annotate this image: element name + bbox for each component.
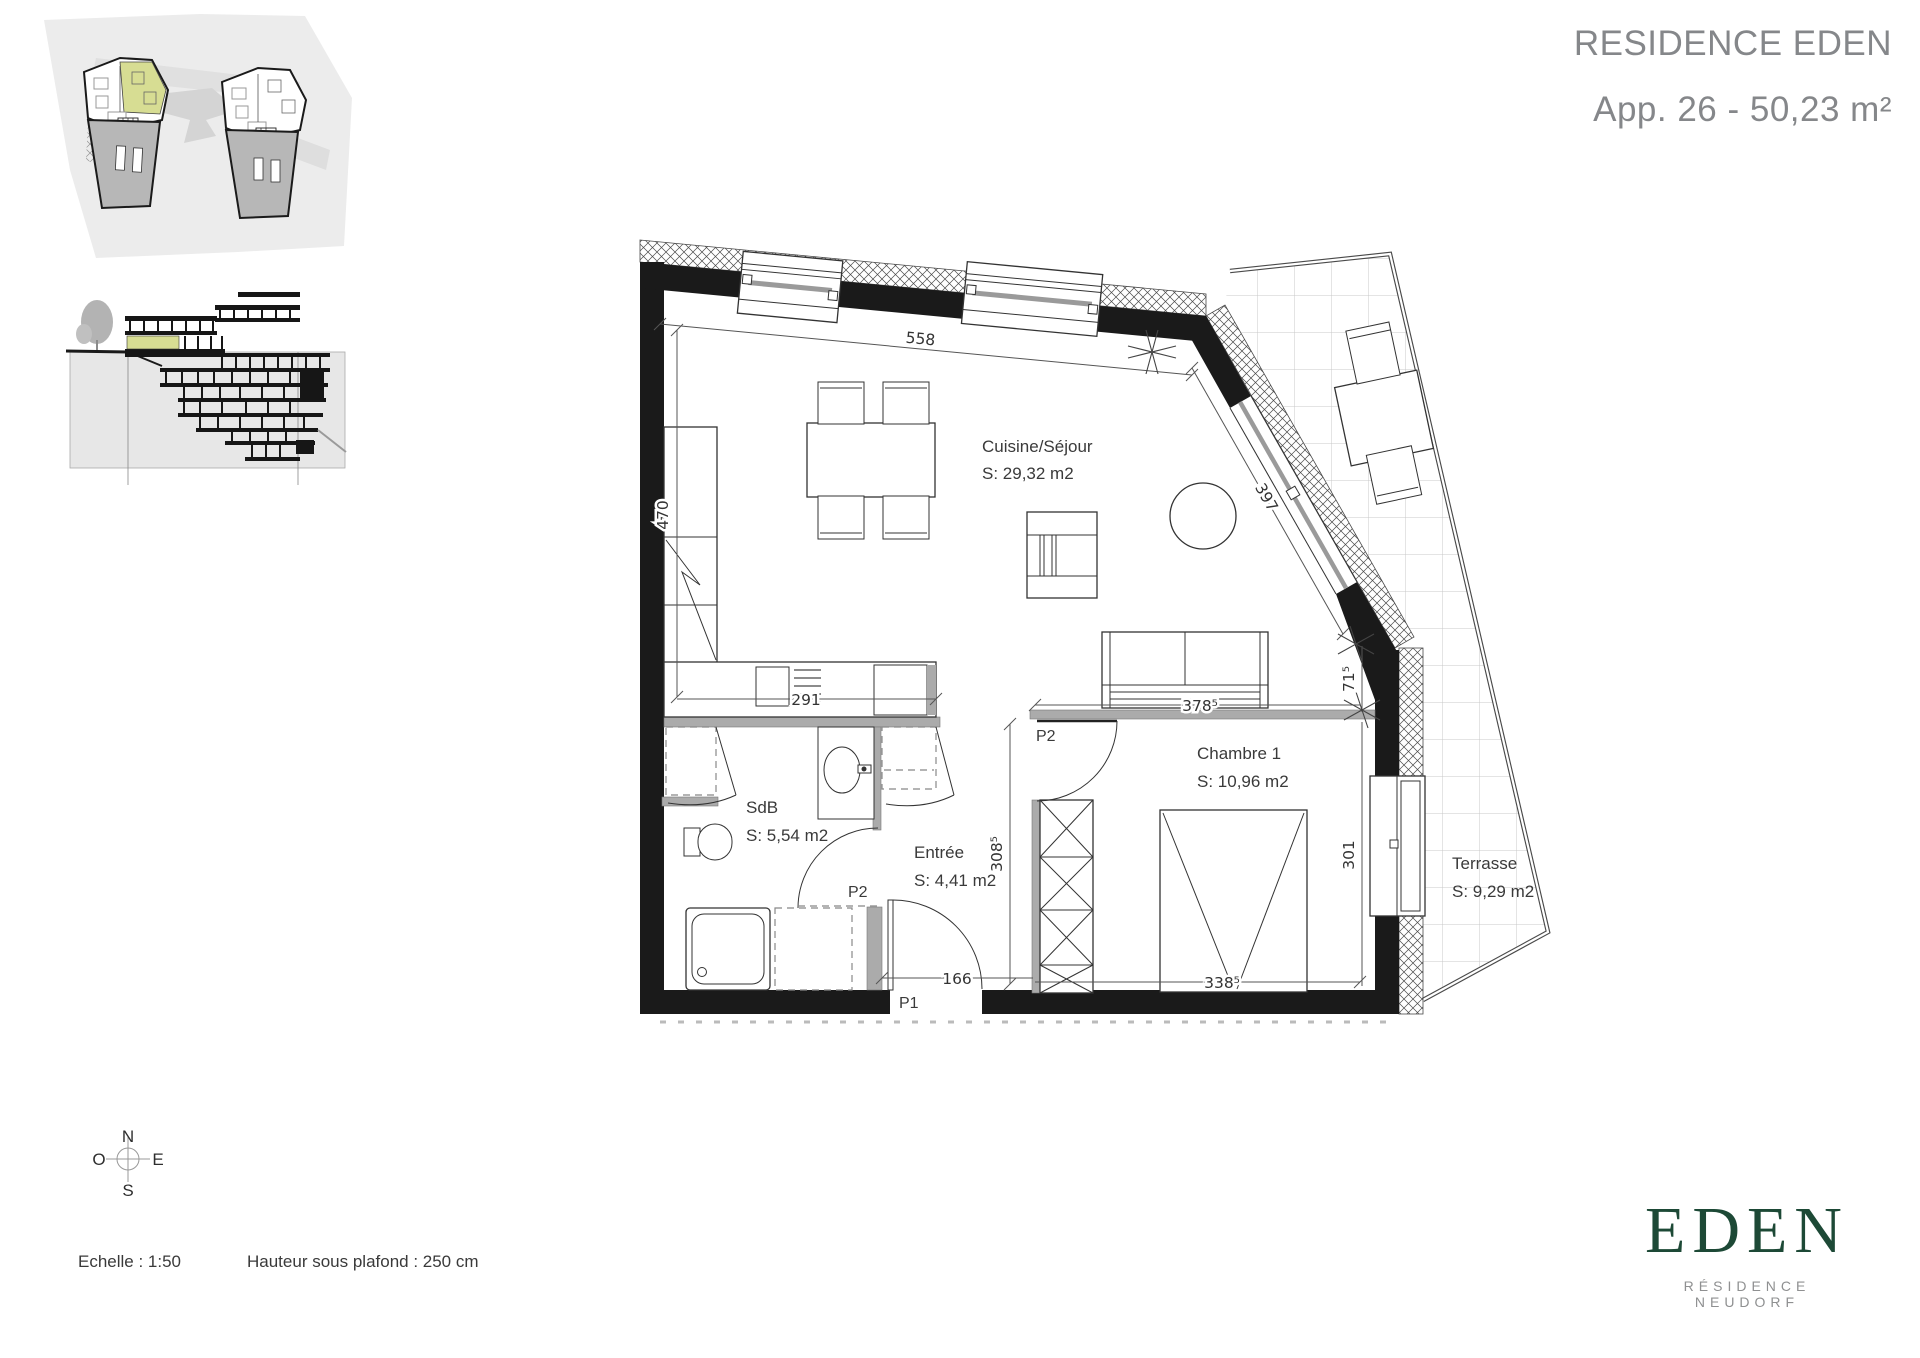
compass-south: S — [122, 1181, 133, 1200]
dim-chambre-width: 338⁵ — [1204, 974, 1240, 992]
vanity-sink — [818, 727, 874, 819]
wardrobe — [1040, 800, 1093, 993]
dim-entree-height: 308⁵ — [988, 836, 1006, 872]
dim-window-right: 301 — [1340, 840, 1358, 870]
dim-left: 470 — [654, 500, 672, 530]
developer-logo: EDEN RÉSIDENCE NEUDORF — [1632, 1198, 1862, 1310]
entry-closet — [882, 727, 954, 806]
compass-north: N — [122, 1127, 134, 1146]
room-area-cuisine: S: 29,32 m2 — [982, 464, 1074, 483]
shower — [686, 908, 770, 990]
compass-rose: N S O E — [92, 1127, 163, 1200]
eden-tagline: RÉSIDENCE NEUDORF — [1632, 1278, 1862, 1310]
floor-plan: 558 470 291 397 71⁵ 378⁵ 308⁵ 166 338⁵ 3… — [640, 240, 1548, 1022]
room-label-chambre: Chambre 1 — [1197, 744, 1281, 763]
ceiling-height-note: Hauteur sous plafond : 250 cm — [247, 1252, 479, 1272]
compass-west: O — [92, 1150, 105, 1169]
room-label-sdb: SdB — [746, 798, 778, 817]
kitchen-sink — [756, 667, 789, 706]
armchair — [1027, 512, 1097, 598]
dim-entree-width: 166 — [942, 970, 972, 988]
floorplan-sheet: RESIDENCE EDEN App. 26 - 50,23 m² — [0, 0, 1920, 1358]
dim-jog: 71⁵ — [1340, 666, 1358, 692]
room-area-sdb: S: 5,54 m2 — [746, 826, 828, 845]
door-label-p2-chambre: P2 — [1036, 728, 1056, 745]
building-section-thumbnail — [66, 292, 346, 485]
dining-table — [807, 382, 935, 539]
door-label-p2-sdb: P2 — [848, 884, 868, 901]
section-highlighted-level — [127, 336, 179, 349]
round-table — [1170, 483, 1236, 549]
dim-bay: 397 — [1251, 480, 1281, 515]
compass-east: E — [152, 1150, 163, 1169]
bed — [1160, 810, 1307, 992]
dim-sejour-width: 378⁵ — [1182, 697, 1218, 715]
room-area-terrasse: S: 9,29 m2 — [1452, 882, 1534, 901]
scale-note: Echelle : 1:50 — [78, 1252, 181, 1272]
window-handle — [1390, 840, 1398, 848]
sliding-door-pocket — [775, 908, 852, 990]
terrace-chair — [1366, 446, 1421, 504]
room-label-terrasse: Terrasse — [1452, 854, 1517, 873]
window-top-2 — [961, 262, 1102, 337]
dim-kitchen: 291 — [791, 691, 821, 709]
dim-top: 558 — [905, 329, 936, 350]
window-terrace-door — [1370, 776, 1425, 916]
door-label-p1: P1 — [899, 995, 919, 1012]
room-label-cuisine: Cuisine/Séjour — [982, 437, 1093, 456]
site-plan-thumbnail — [44, 14, 352, 258]
cooktop — [874, 665, 927, 715]
drawing-canvas: 558 470 291 397 71⁵ 378⁵ 308⁵ 166 338⁵ 3… — [0, 0, 1920, 1358]
room-area-chambre: S: 10,96 m2 — [1197, 772, 1289, 791]
eden-wordmark: EDEN — [1632, 1198, 1862, 1264]
room-area-entree: S: 4,41 m2 — [914, 871, 996, 890]
window-top-1 — [737, 251, 842, 322]
closet-sdb — [666, 727, 736, 805]
room-label-entree: Entrée — [914, 843, 964, 862]
toilet — [684, 824, 732, 860]
shower-drain — [698, 968, 707, 977]
